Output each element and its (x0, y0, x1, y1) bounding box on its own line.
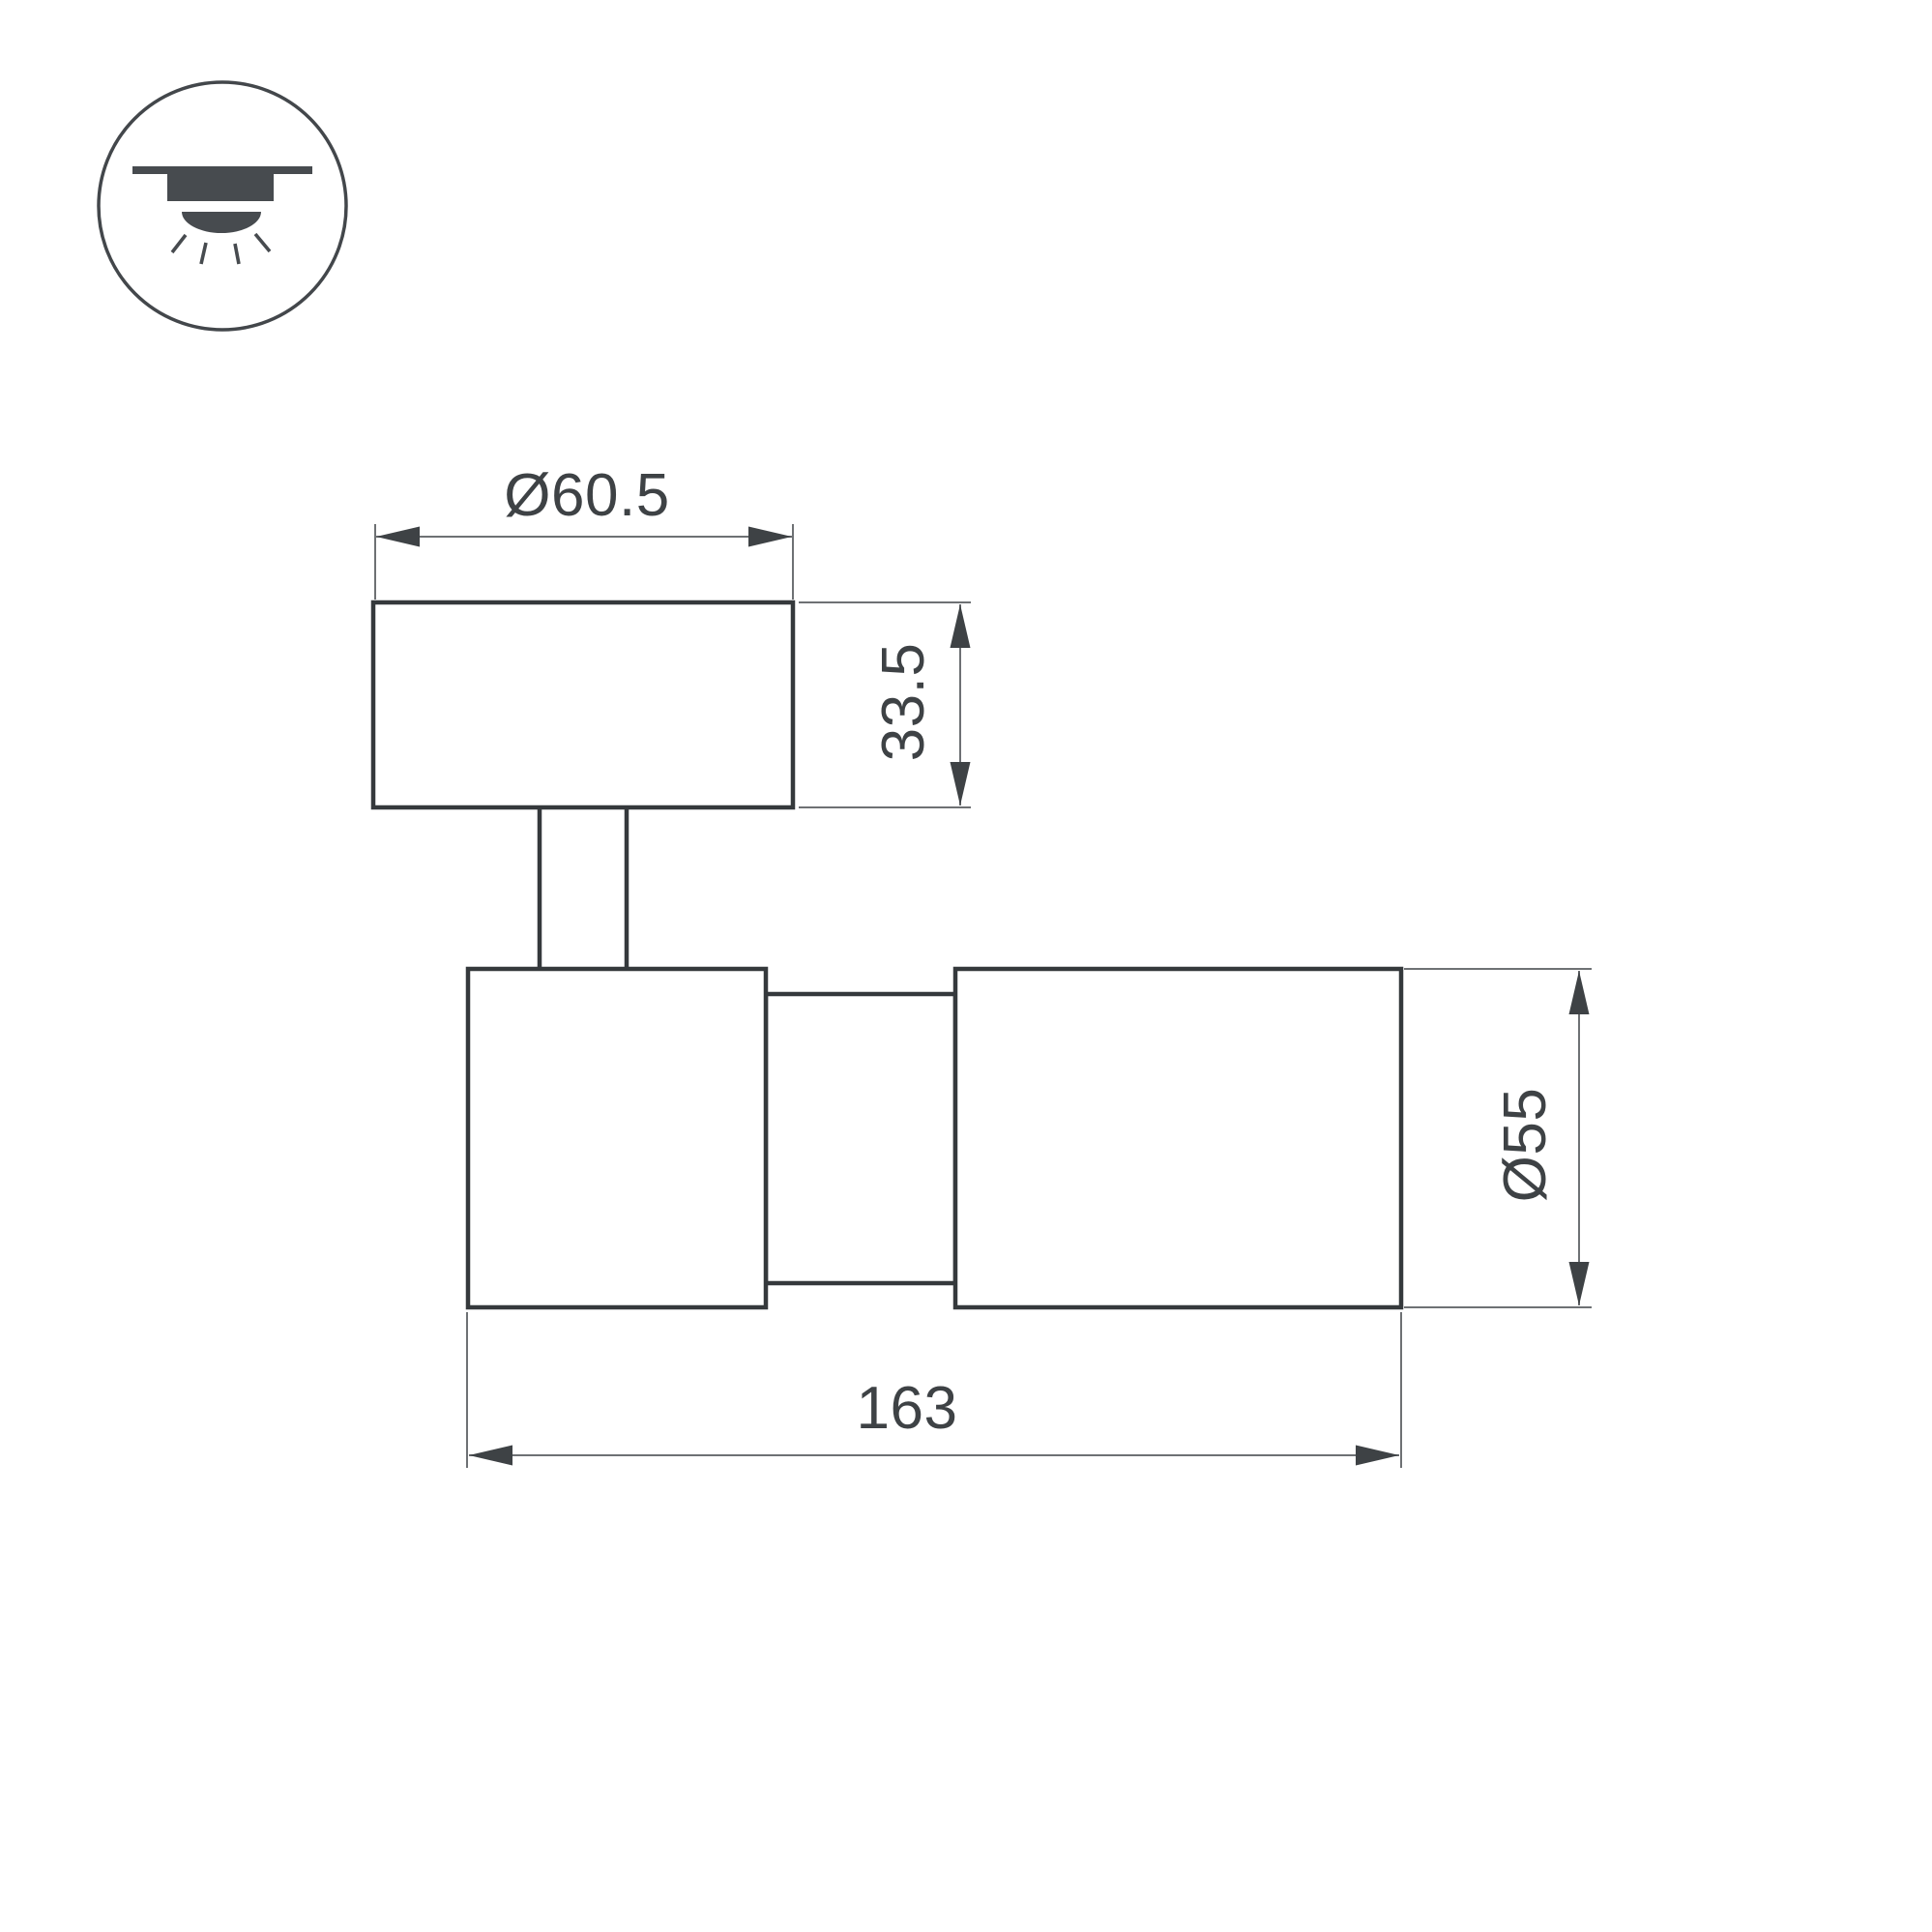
arrowhead-down (951, 762, 971, 805)
arrowhead-right (748, 527, 792, 547)
dim-label-total-length: 163 (857, 1375, 958, 1442)
arrowhead-right (1356, 1446, 1399, 1466)
light-ray-icon (172, 235, 186, 252)
dim-total-length: 163 (467, 1312, 1401, 1468)
dim-label-base-height: 33.5 (870, 643, 937, 762)
icon-circle-border (99, 82, 346, 330)
light-ray-icon (255, 234, 270, 251)
dim-label-body-diameter: Ø55 (1492, 1088, 1559, 1203)
body-front-outline (955, 969, 1401, 1307)
lamp-housing (167, 174, 274, 201)
dim-top-diameter: Ø60.5 (375, 462, 793, 600)
arrowhead-down (1569, 1262, 1590, 1305)
dim-base-height: 33.5 (799, 602, 971, 807)
body-rear-outline (468, 969, 766, 1307)
mount-base-outline (373, 602, 793, 807)
arrowhead-left (376, 527, 420, 547)
lamp-dome (182, 212, 261, 233)
light-ray-icon (235, 244, 239, 264)
fixture-dimension-drawing: Ø60.5 33.5 Ø55 163 (0, 0, 1932, 1932)
dim-label-top-diameter: Ø60.5 (504, 462, 669, 529)
ceiling-line (132, 166, 312, 174)
technical-drawing-page: Ø60.5 33.5 Ø55 163 (0, 0, 1932, 1932)
light-ray-icon (201, 243, 206, 264)
ceiling-light-icon (99, 82, 346, 330)
dim-body-diameter: Ø55 (1404, 969, 1592, 1307)
arrowhead-left (469, 1446, 512, 1466)
body-connector-outline (766, 994, 955, 1283)
arrowhead-up (1569, 971, 1590, 1014)
arrowhead-up (951, 604, 971, 648)
